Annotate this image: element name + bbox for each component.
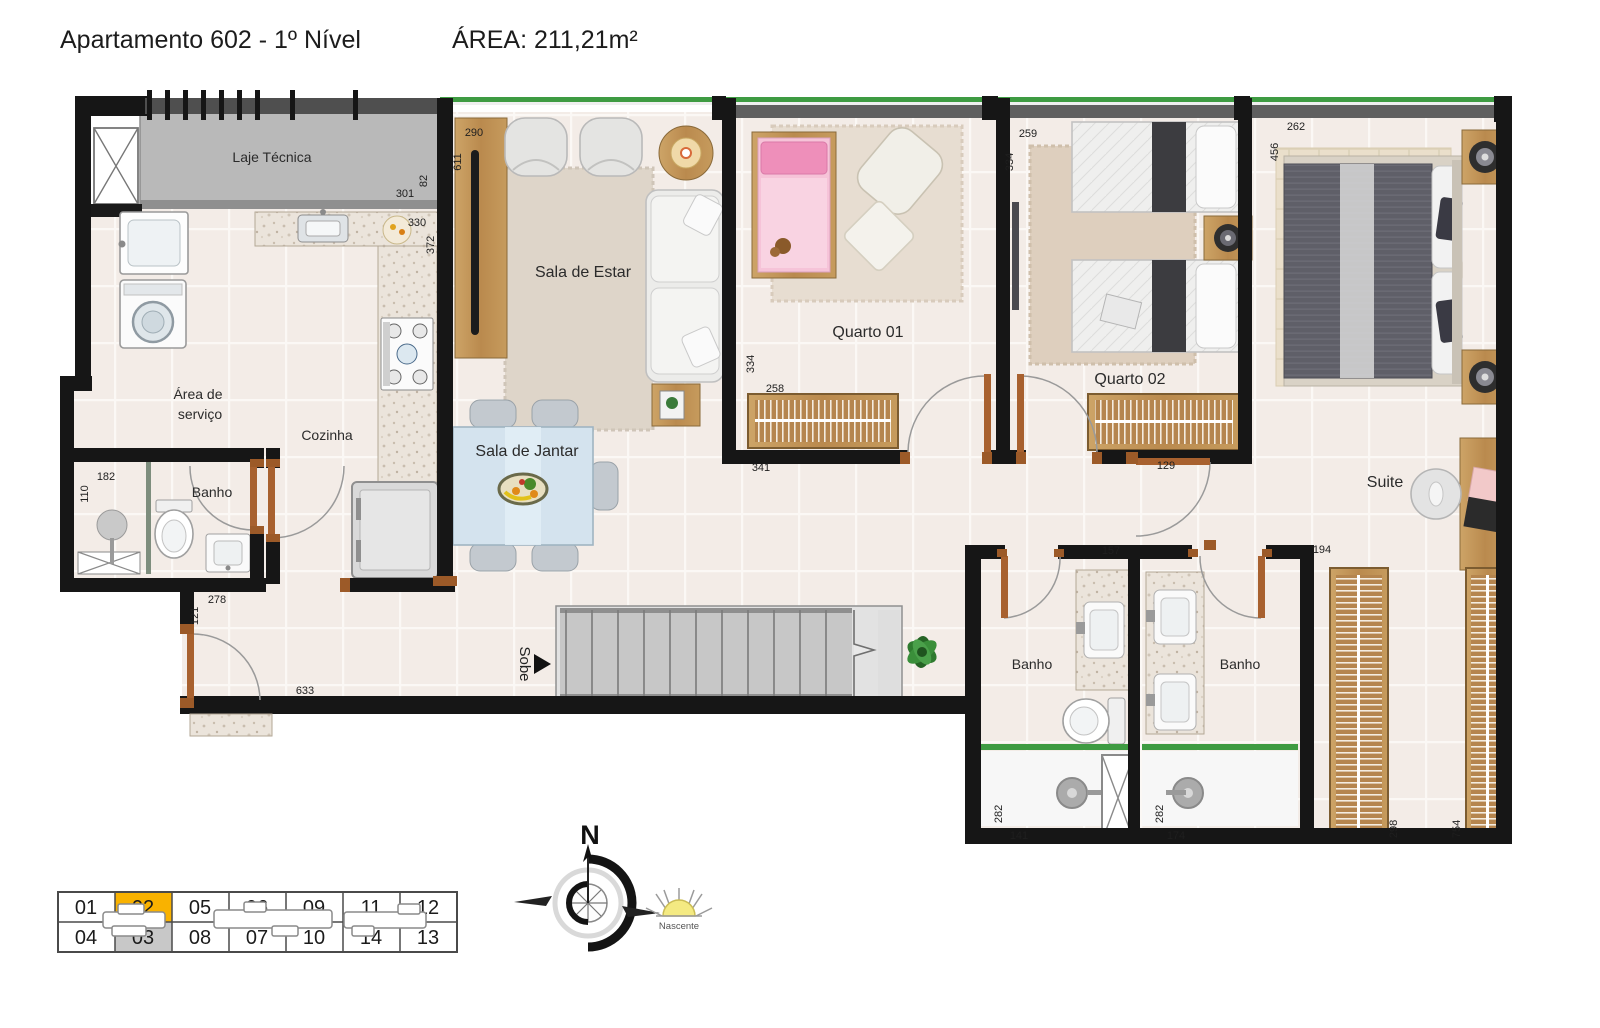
unit-13: 13 bbox=[417, 927, 439, 949]
window-strip bbox=[440, 97, 1496, 102]
magazine-table bbox=[652, 384, 700, 426]
dim-suite-width: 262 bbox=[1287, 121, 1305, 133]
closet-1 bbox=[1330, 568, 1388, 840]
dim-entry-door: 121 bbox=[189, 607, 201, 625]
dim-shower1-depth: 282 bbox=[993, 805, 1005, 823]
label-sobe: Sobe bbox=[516, 646, 533, 681]
label-cozinha: Cozinha bbox=[301, 427, 353, 443]
dim-shower2-width: 174 bbox=[1167, 830, 1185, 842]
dim-laje-height: 82 bbox=[418, 175, 430, 187]
label-laje-tecnica: Laje Técnica bbox=[232, 149, 311, 165]
twin-bed-2 bbox=[1072, 260, 1240, 352]
dim-q1-width: 341 bbox=[752, 462, 770, 474]
dim-banho1-width: 157 bbox=[1102, 545, 1120, 557]
dining-chair bbox=[532, 543, 578, 571]
single-bed-pink bbox=[752, 132, 836, 278]
entry-doormat bbox=[190, 714, 272, 736]
dim-sala-depth: 611 bbox=[452, 153, 464, 171]
unit-07: 07 bbox=[246, 927, 268, 949]
unit-05: 05 bbox=[189, 897, 211, 919]
service-area bbox=[119, 212, 189, 348]
mirror bbox=[1012, 202, 1019, 310]
dim-q2-door: 129 bbox=[1157, 460, 1175, 472]
label-suite: Suite bbox=[1367, 474, 1404, 491]
label-area-servico-1: Área de bbox=[173, 386, 222, 402]
label-sala-de-jantar: Sala de Jantar bbox=[475, 443, 579, 460]
shower-glass-2 bbox=[1142, 744, 1298, 750]
unit-key-plan: 01 02 05 06 09 11 12 04 03 08 07 10 14 1… bbox=[58, 892, 457, 952]
dim-q2-depth: 334 bbox=[1004, 153, 1016, 171]
area-label: ÁREA: 211,21m² bbox=[452, 26, 638, 55]
header: Apartamento 602 - 1º Nível ÁREA: 211,21m… bbox=[0, 26, 1600, 66]
floorplan-page: Apartamento 602 - 1º Nível ÁREA: 211,21m… bbox=[0, 0, 1600, 1028]
dining-chair bbox=[590, 462, 618, 510]
unit-04: 04 bbox=[75, 927, 97, 949]
wardrobe-q2 bbox=[1088, 394, 1240, 450]
stool-icon bbox=[97, 510, 127, 540]
armchair bbox=[580, 118, 642, 176]
compass-north-label: N bbox=[580, 820, 600, 850]
floor-plan: Laje Técnica Sala de Estar Área de servi… bbox=[0, 0, 1600, 1028]
dim-banho-social-depth: 110 bbox=[79, 485, 91, 503]
dim-closet1-length: 298 bbox=[1388, 820, 1400, 838]
sink-icon bbox=[206, 534, 250, 572]
wardrobe-q1 bbox=[748, 394, 898, 448]
dim-laje-width: 301 bbox=[396, 188, 414, 200]
tv-icon bbox=[471, 150, 479, 335]
entry-door-leaf bbox=[187, 632, 194, 700]
fruit-bowl-icon bbox=[499, 474, 547, 504]
compass-rose-icon: N bbox=[514, 820, 660, 947]
toilet-icon bbox=[1063, 698, 1125, 744]
label-sala-de-estar: Sala de Estar bbox=[535, 264, 632, 281]
dim-shower1-width: 141 bbox=[1010, 830, 1028, 842]
dim-shower2-depth: 282 bbox=[1154, 805, 1166, 823]
stove-icon bbox=[381, 318, 433, 390]
label-banho-2: Banho bbox=[1220, 656, 1261, 672]
dining-chair bbox=[470, 543, 516, 571]
sun-east-label: Nascente bbox=[659, 921, 699, 932]
unit-01: 01 bbox=[75, 897, 97, 919]
dim-q1-wardrobe: 258 bbox=[766, 383, 784, 395]
sofa bbox=[646, 190, 724, 382]
armchair bbox=[505, 118, 567, 176]
shower-glass-1 bbox=[981, 744, 1128, 750]
dim-suite-depth: 456 bbox=[1269, 143, 1281, 161]
dim-sala-width: 290 bbox=[465, 127, 483, 139]
sun-icon: Nascente bbox=[646, 888, 712, 932]
twin-bed-1 bbox=[1072, 122, 1240, 212]
dining-chair bbox=[470, 400, 516, 428]
laundry-sink-icon bbox=[119, 212, 189, 274]
dim-entry-width: 278 bbox=[208, 594, 226, 606]
label-quarto-01: Quarto 01 bbox=[832, 324, 903, 341]
stairs bbox=[534, 606, 902, 702]
double-bed bbox=[1284, 156, 1463, 386]
fridge-icon bbox=[352, 482, 438, 578]
label-quarto-02: Quarto 02 bbox=[1094, 371, 1165, 388]
dim-banho-social-width: 182 bbox=[97, 471, 115, 483]
unit-10: 10 bbox=[303, 927, 325, 949]
elevator-shaft-icon bbox=[94, 128, 138, 204]
fruit-bowl-kitchen bbox=[383, 216, 411, 244]
dim-kitchen-width: 330 bbox=[408, 217, 426, 229]
toilet-icon bbox=[155, 500, 193, 558]
dining-chair bbox=[532, 400, 578, 428]
dim-closet2-length: 754 bbox=[1451, 820, 1463, 838]
dim-hall-length: 633 bbox=[296, 685, 314, 697]
label-banho-social: Banho bbox=[192, 484, 233, 500]
dim-q2-width: 259 bbox=[1019, 128, 1037, 140]
dim-closet-hall-width: 194 bbox=[1313, 544, 1331, 556]
washing-machine-icon bbox=[120, 280, 186, 348]
label-banho-1: Banho bbox=[1012, 656, 1053, 672]
label-area-servico-2: serviço bbox=[178, 406, 223, 422]
page-title: Apartamento 602 - 1º Nível bbox=[60, 26, 361, 55]
dim-kitchen-depth: 372 bbox=[425, 236, 437, 254]
dim-q1-depth: 334 bbox=[745, 355, 757, 373]
living-rug bbox=[505, 168, 653, 430]
unit-08: 08 bbox=[189, 927, 211, 949]
